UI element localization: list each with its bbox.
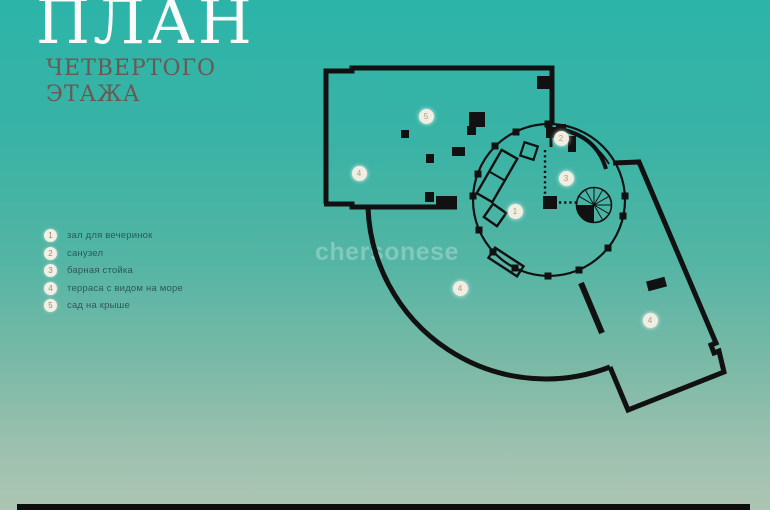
floor-plan-drawing <box>0 0 770 510</box>
planter <box>426 154 434 163</box>
column <box>576 267 583 274</box>
terrace-curved-wall <box>368 208 610 379</box>
table <box>520 142 538 160</box>
plan-marker-1: 1 <box>508 204 523 219</box>
sofa <box>477 150 518 202</box>
plan-marker-2: 2 <box>554 131 569 146</box>
planter <box>452 147 465 156</box>
slide-floor-plan: ПЛАН ЧЕТВЕРТОГО ЭТАЖА 1 зал для вечерино… <box>0 0 770 510</box>
plan-marker-4-terrace: 4 <box>453 281 468 296</box>
column <box>545 273 552 280</box>
table <box>484 204 506 226</box>
column <box>622 193 629 200</box>
column <box>620 213 627 220</box>
column <box>475 171 482 178</box>
planter <box>467 126 476 135</box>
bottom-bar <box>17 504 750 510</box>
planter <box>401 130 409 138</box>
plan-fixtures <box>401 76 667 291</box>
bar-counter-block <box>543 196 557 209</box>
column <box>545 121 552 128</box>
plan-marker-5: 5 <box>419 109 434 124</box>
terrace-dividing-wall <box>581 283 602 333</box>
column <box>605 245 612 252</box>
planter <box>436 196 457 205</box>
planter <box>469 112 485 127</box>
staircase-entry-wedge <box>577 205 595 223</box>
plan-marker-4-roof: 4 <box>352 166 367 181</box>
plan-marker-4-wing: 4 <box>643 313 658 328</box>
room-outline-top-left <box>326 68 552 204</box>
planter <box>425 192 434 202</box>
shower-fixture <box>568 136 576 152</box>
spiral-staircase <box>577 188 612 223</box>
plan-walls <box>324 68 724 410</box>
column <box>492 143 499 150</box>
column <box>513 129 520 136</box>
plan-marker-3: 3 <box>559 171 574 186</box>
wing-bench <box>646 277 667 292</box>
column <box>512 265 519 272</box>
column <box>476 227 483 234</box>
planter <box>537 76 551 89</box>
